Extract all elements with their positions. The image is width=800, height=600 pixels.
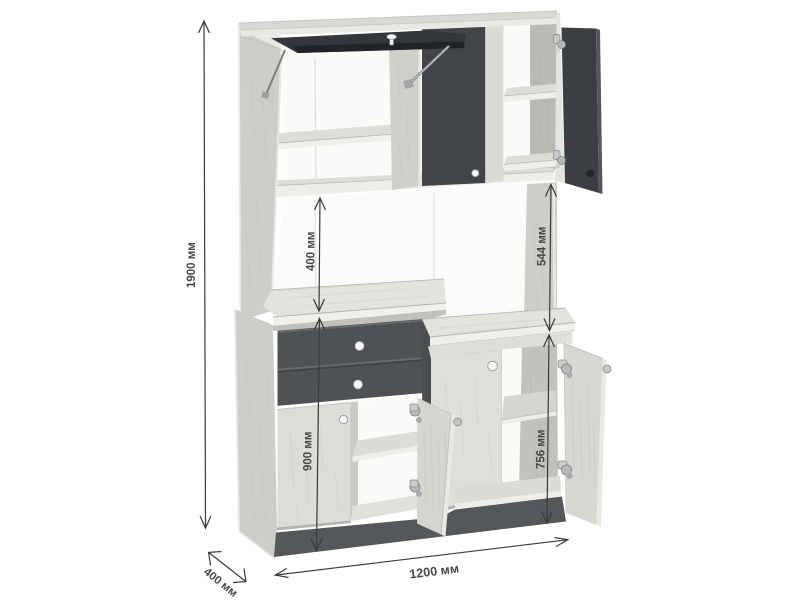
svg-text:900 мм: 900 мм [303,432,315,471]
svg-text:544 мм: 544 мм [537,227,549,266]
svg-text:1900 мм: 1900 мм [186,242,198,288]
svg-text:756 мм: 756 мм [536,430,548,469]
svg-text:400 мм: 400 мм [306,232,318,271]
